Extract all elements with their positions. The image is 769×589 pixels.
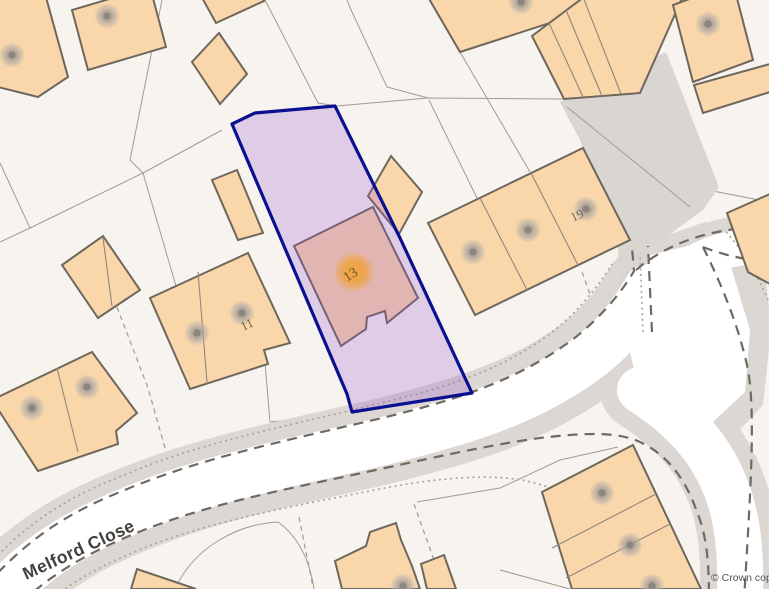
building-dot: [74, 374, 100, 400]
building-dot: [94, 3, 120, 29]
map-canvas[interactable]: 13 11 19 Melford Close © Crown copy: [0, 0, 769, 589]
building-dot: [515, 217, 541, 243]
building-dot: [0, 42, 25, 68]
building-dot: [617, 532, 643, 558]
property-map[interactable]: 13 11 19 Melford Close © Crown copy: [0, 0, 769, 589]
building-dot: [695, 11, 721, 37]
building-dot: [19, 395, 45, 421]
copyright-attribution: © Crown copy: [711, 572, 769, 584]
building-dot: [184, 320, 210, 346]
building-dot: [460, 239, 486, 265]
building-dot: [589, 480, 615, 506]
